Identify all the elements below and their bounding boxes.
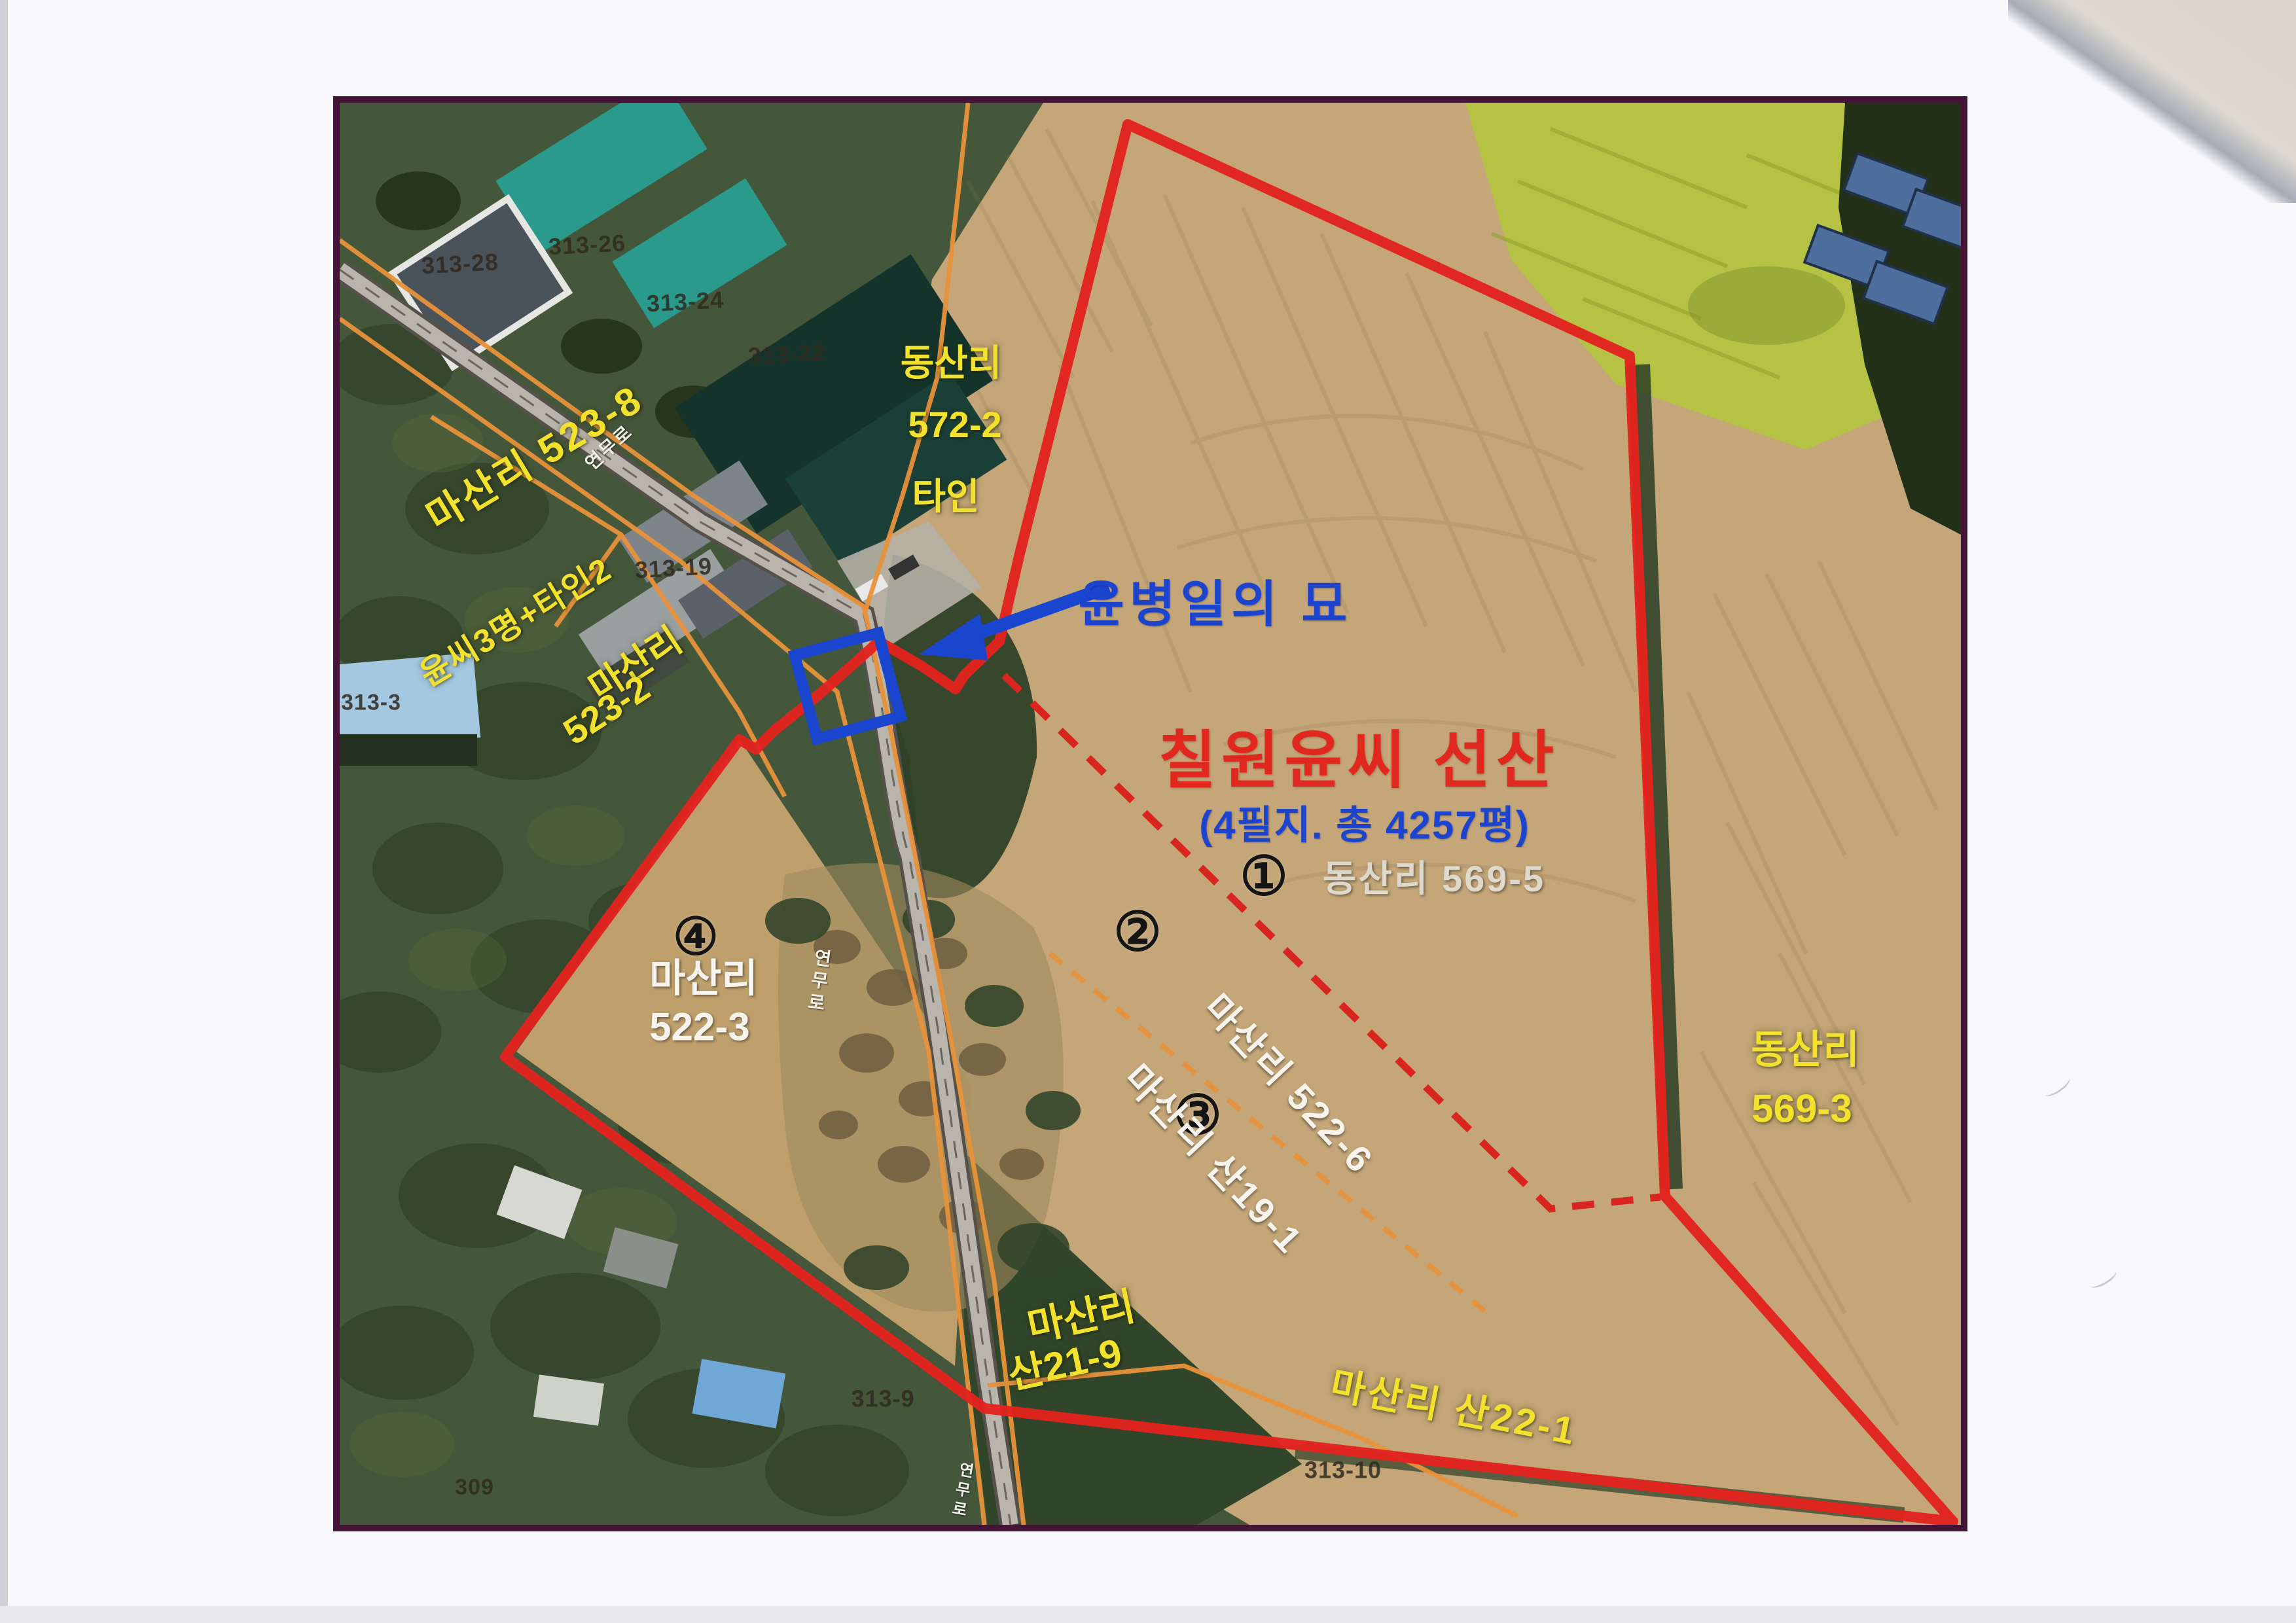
map-title: 칠원윤씨 선산 (1158, 725, 1560, 797)
parcel-4-label-line1: 마산리 (649, 956, 758, 1001)
area-label-dongsanri-572-2-line2: 572-2 (908, 404, 1001, 446)
aerial-map: 마산리 523-8 윤씨3명+타인2 동산리 572-2 타인 마산리 523-… (333, 96, 1967, 1531)
area-label-dongsanri-569-3-line2: 569-3 (1751, 1086, 1852, 1132)
scan-edge-left (0, 0, 8, 1623)
parcel-2-number: ② (1113, 902, 1162, 963)
map-subtitle: (4필지. 총 4257평) (1199, 803, 1530, 848)
cadastral-id-313-24: 313-24 (646, 286, 725, 317)
parcel-1-label: 동산리 569-5 (1323, 858, 1545, 900)
pencil-mark (2087, 1266, 2119, 1291)
cadastral-id-313-26: 313-26 (548, 229, 626, 260)
scan-edge-bottom (0, 1606, 2296, 1623)
cadastral-id-313-10: 313-10 (1304, 1456, 1382, 1483)
scanned-page: 마산리 523-8 윤씨3명+타인2 동산리 572-2 타인 마산리 523-… (0, 0, 2296, 1623)
cadastral-id-313-3: 313-3 (341, 690, 401, 715)
pencil-mark (2041, 1073, 2073, 1100)
parcel-1-number: ① (1240, 846, 1288, 908)
grave-marker-label: 윤병일의 묘 (1079, 576, 1353, 633)
folded-corner-artifact (2008, 0, 2296, 203)
cadastral-id-313-9: 313-9 (851, 1385, 914, 1412)
cadastral-id-309: 309 (455, 1474, 494, 1500)
map-graphics (340, 103, 1961, 1525)
cadastral-id-313-28: 313-28 (421, 248, 499, 279)
cadastral-id-313-22: 313-22 (747, 338, 826, 370)
area-label-dongsanri-572-2-line1: 동산리 (901, 342, 1002, 384)
area-label-dongsanri-569-3-line1: 동산리 (1751, 1027, 1859, 1073)
cadastral-id-313-19: 313-19 (634, 552, 713, 584)
area-label-dongsanri-572-2-line3: 타인 (912, 476, 979, 518)
parcel-4-label-line2: 522-3 (649, 1005, 749, 1050)
